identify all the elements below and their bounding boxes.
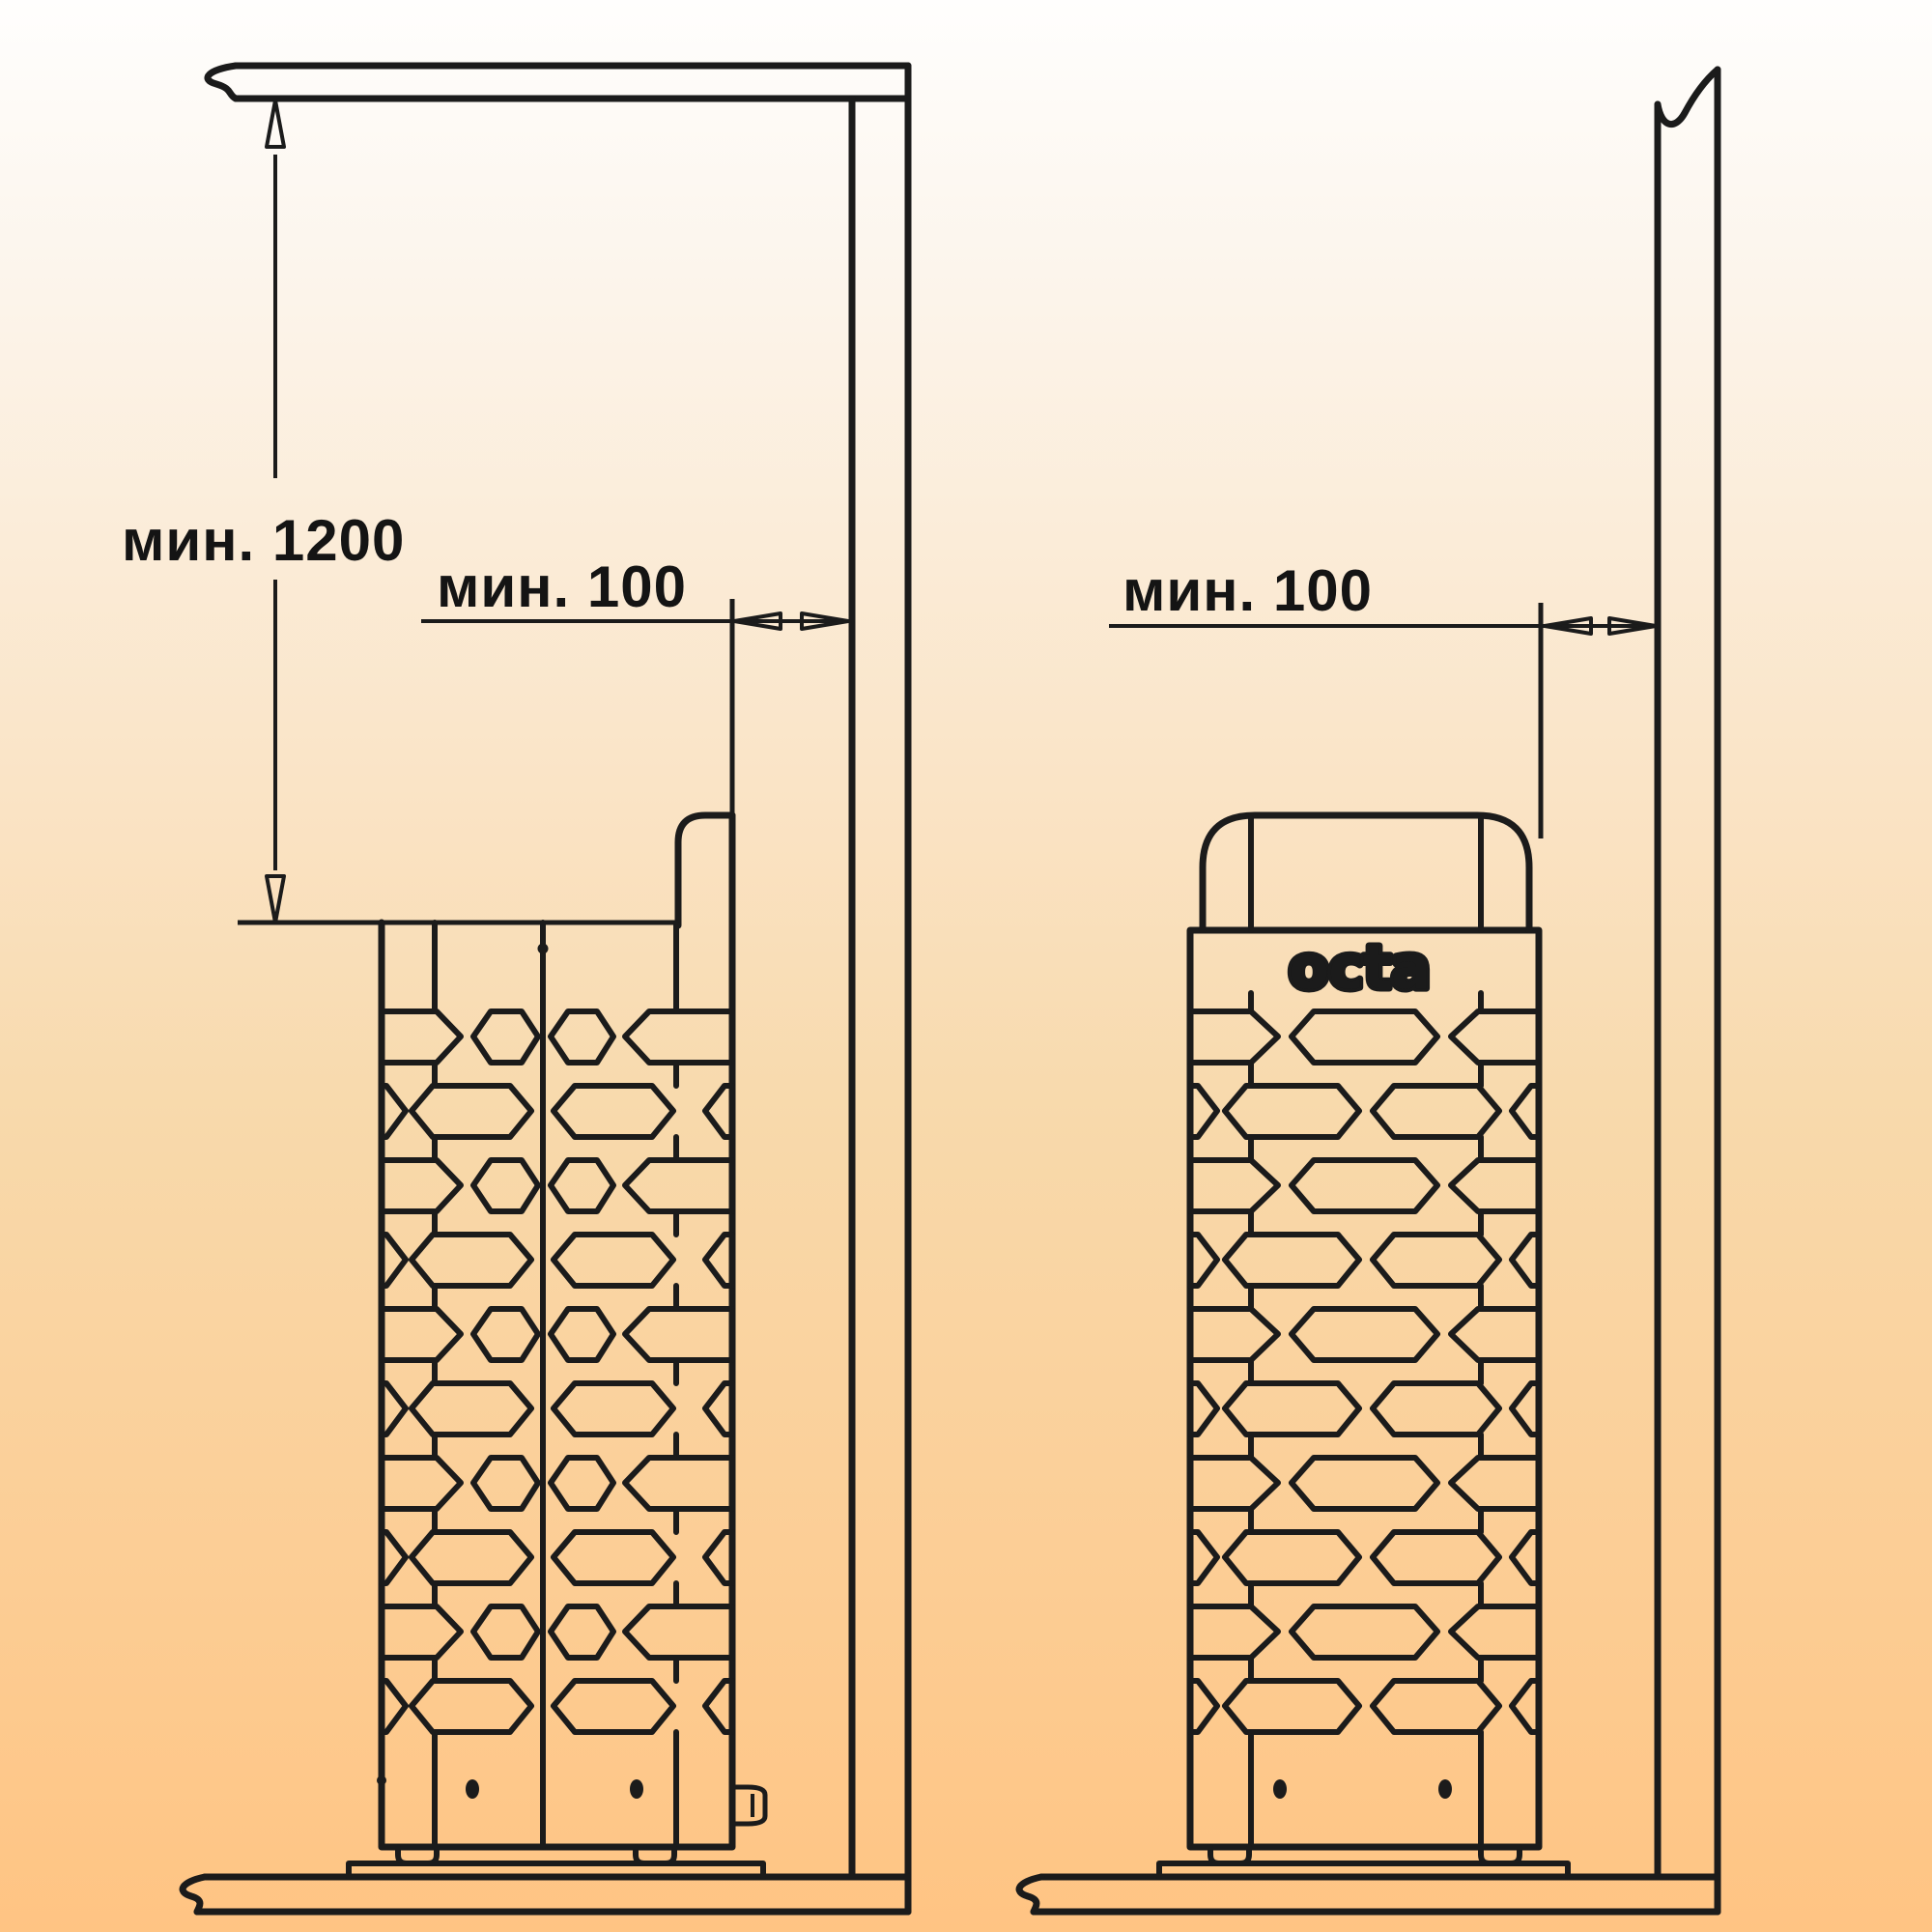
heater-front-view: octa [1159,815,1568,1877]
floor-break-mark [1019,1877,1041,1912]
grille-row [1190,1309,1539,1360]
front-view-diagram: мин. 100 octa [1019,70,1718,1912]
grille-row [1190,1606,1539,1658]
grille-row [1190,1235,1539,1286]
heater-grille [382,923,732,1847]
min-ceiling-clearance-label: мин. 1200 [122,508,405,573]
grille-row [1190,1681,1539,1732]
left-wall [852,66,908,1912]
screw-head [1273,1779,1287,1799]
weld-dot [538,944,549,954]
grille-row [382,1086,732,1137]
grille-row [382,1160,732,1211]
grille-row [382,1458,732,1509]
grille-row [382,1011,732,1063]
dimension-min-100-front: мин. 100 [1109,558,1656,838]
brand-logo: octa [1289,932,1431,1003]
right-floor [1019,1877,1718,1912]
ceiling [208,66,908,99]
grille-row [1190,1011,1539,1063]
grille-row [1190,1160,1539,1211]
dimension-min-100-side: мин. 100 [421,554,848,815]
ceiling-break-mark [208,66,236,99]
grille-row [382,1383,732,1435]
side-view-diagram: мин. 1200 мин. 100 [122,66,908,1912]
arrow-up-icon [267,100,284,147]
screw-head [1438,1779,1452,1799]
grille-row [382,1309,732,1360]
screw-head [466,1779,479,1799]
screw-head [630,1779,643,1799]
grille-row [382,1606,732,1658]
dimension-min-1200: мин. 1200 [122,100,678,923]
control-box [678,815,732,925]
wall-break-mark [1658,70,1718,125]
left-floor [183,1877,908,1912]
screw-dot [377,1776,386,1785]
grille-row [1190,1086,1539,1137]
top-cap-panel-lines [1251,818,1481,930]
grille-row [1190,1383,1539,1435]
min-wall-clearance-front-label: мин. 100 [1122,558,1373,623]
power-connector [732,1787,765,1824]
grille-row [1190,1532,1539,1583]
heater-side-view [349,815,765,1877]
right-wall [1658,70,1718,1912]
min-wall-clearance-side-label: мин. 100 [437,554,687,619]
grille-row [1190,1458,1539,1509]
heater-grille [1190,993,1539,1847]
floor-break-mark [183,1877,205,1912]
diagram-canvas: мин. 1200 мин. 100 [0,0,1932,1932]
installation-diagram: мин. 1200 мин. 100 [0,0,1932,1932]
grille-row [382,1681,732,1732]
arrow-down-icon [267,876,284,923]
grille-row [382,1235,732,1286]
grille-row [382,1532,732,1583]
